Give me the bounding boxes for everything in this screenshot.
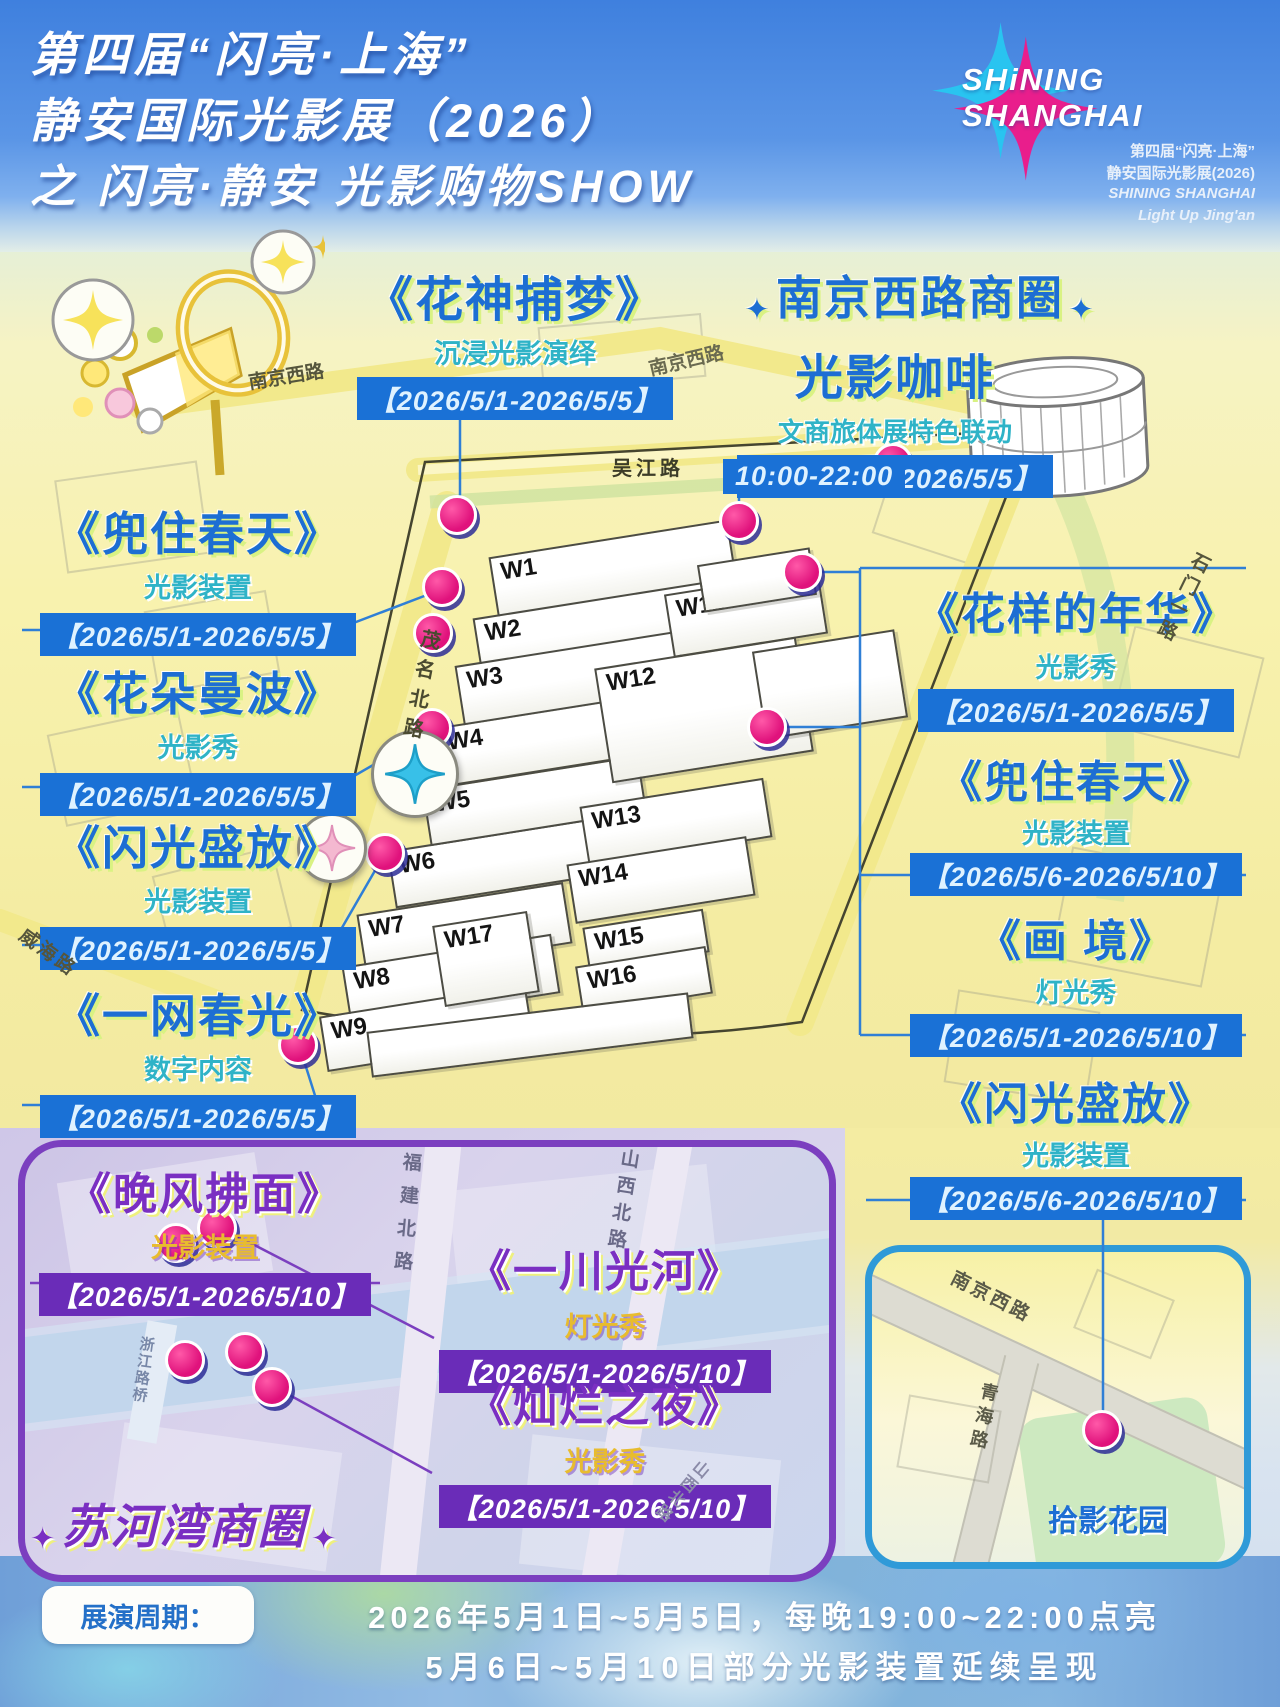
logo-subline1: 第四届“闪亮·上海” [995, 140, 1255, 161]
event-type: 光影装置 [885, 812, 1267, 851]
event-poster: W1 W2 W3 W4 W5 W6 W7 W8 W9 W11 W12 W13 W… [0, 0, 1280, 1707]
event-type: 光影装置 [30, 1226, 380, 1265]
poster-title-line3: 之 闪亮·静安 光影购物SHOW [30, 150, 695, 215]
event-title: 《花样的年华》 [885, 578, 1267, 642]
map-marker [252, 1367, 292, 1407]
event-title: 《晚风拂面》 [30, 1158, 380, 1222]
event-dates-badge: 【2026/5/1-2026/5/5】 [40, 1095, 356, 1138]
map-marker [719, 501, 759, 541]
event-type: 光影秀 [20, 726, 376, 765]
footer-schedule-pill: 展演周期： [42, 1586, 254, 1644]
event-title: 《兜住春天》 [885, 746, 1267, 810]
road-label-wujiang: 吴江路 [612, 452, 684, 481]
event-huaduo-manbo: 《花朵曼波》 光影秀 【2026/5/1-2026/5/5】 [20, 658, 376, 816]
event-dates-badge: 【2026/5/6-2026/5/10】 [910, 1177, 1242, 1220]
megaphone-flowers-illustration [25, 225, 325, 485]
district-title: 南京西路商圈 [776, 272, 1064, 324]
poster-title-line2: 静安国际光影展（2026） [30, 82, 623, 151]
event-canlan-zhiye: 《灿烂之夜》 光影秀 【2026/5/1-2026/5/10】 [420, 1370, 790, 1528]
event-dates-badge: 【2026/5/1-2026/5/5】 [40, 613, 356, 656]
coffee-time-badge: 10:00-22:00 [723, 459, 905, 494]
event-huashen-bumeng: 《花神捕梦》 沉浸光影演绎 【2026/5/1-2026/5/5】 [330, 260, 700, 420]
map-marker [225, 1332, 265, 1372]
logo-subline2: 静安国际光影展(2026) [995, 162, 1255, 183]
sparkle-icon: ✦ [311, 1522, 338, 1555]
event-douzhu-chuntian-right: 《兜住春天》 光影装置 【2026/5/6-2026/5/10】 [885, 746, 1267, 896]
sparkle-icon: ✦ [744, 293, 771, 326]
logo-name-line1: SHiNING [962, 62, 1105, 98]
suhewan-district-title: ✦ 苏河湾商圈 ✦ [30, 1488, 338, 1557]
event-wanfeng-fumian: 《晚风拂面》 光影装置 【2026/5/1-2026/5/10】 [30, 1158, 380, 1316]
event-shanguang-shengfang-left: 《闪光盛放》 光影装置 【2026/5/1-2026/5/5】 [20, 812, 376, 970]
event-huayang-nianhua: 《花样的年华》 光影秀 【2026/5/1-2026/5/5】 [885, 578, 1267, 732]
nanjing-west-district-title: ✦ 南京西路商圈 ✦ [660, 262, 1180, 328]
logo-subline4: Light Up Jing'an [995, 207, 1255, 224]
event-title: 《画 境》 [885, 905, 1267, 969]
event-huajing: 《画 境》 灯光秀 【2026/5/1-2026/5/10】 [885, 905, 1267, 1057]
event-type: 数字内容 [20, 1048, 376, 1087]
map-marker [422, 567, 462, 607]
event-title: 《花神捕梦》 [330, 260, 700, 330]
event-title: 《闪光盛放》 [20, 812, 376, 878]
logo-subline3: SHINING SHANGHAI [995, 185, 1255, 202]
event-dates-badge: 【2026/5/1-2026/5/5】 [357, 377, 673, 420]
event-dates-badge: 【2026/5/1-2026/5/10】 [439, 1485, 771, 1528]
event-type: 沉浸光影演绎 [330, 332, 700, 371]
event-title: 《灿烂之夜》 [420, 1370, 790, 1434]
event-yiwang-chunguang: 《一网春光》 数字内容 【2026/5/1-2026/5/5】 [20, 980, 376, 1138]
sparkle-icon: ✦ [1068, 293, 1095, 326]
logo-name-line2: SHANGHAI [962, 98, 1143, 134]
event-douzhu-chuntian-left: 《兜住春天》 光影装置 【2026/5/1-2026/5/5】 [20, 498, 376, 656]
event-title: 《兜住春天》 [20, 498, 376, 564]
event-dates-badge: 【2026/5/1-2026/5/5】 [918, 689, 1234, 732]
footer-line2: 5月6日~5月10日部分光影装置延续呈现 [262, 1642, 1267, 1687]
event-dates-badge: 【2026/5/1-2026/5/10】 [39, 1273, 371, 1316]
event-type: 灯光秀 [885, 971, 1267, 1010]
event-title: 《一网春光》 [20, 980, 376, 1046]
event-type: 文商旅体展特色联动 [700, 412, 1090, 449]
event-type: 光影秀 [885, 646, 1267, 685]
map-marker [1082, 1410, 1122, 1450]
sparkle-icon [384, 743, 446, 805]
event-title: 《闪光盛放》 [885, 1068, 1267, 1132]
map-marker [165, 1340, 205, 1380]
garden-label: 拾影花园 [1048, 1496, 1168, 1540]
event-dates-badge: 【2026/5/1-2026/5/5】 [40, 773, 356, 816]
event-type: 灯光秀 [420, 1305, 790, 1344]
event-type: 光影装置 [20, 880, 376, 919]
sparkle-icon: ✦ [30, 1522, 57, 1555]
event-title: 光影咖啡 [700, 338, 1090, 408]
map-marker [782, 552, 822, 592]
event-type: 光影秀 [420, 1440, 790, 1479]
event-dates-badge: 【2026/5/1-2026/5/10】 [910, 1014, 1242, 1057]
event-type: 光影装置 [885, 1134, 1267, 1173]
poster-title-line1: 第四届“闪亮·上海” [30, 16, 472, 85]
event-title: 《花朵曼波》 [20, 658, 376, 724]
district-title: 苏河湾商圈 [62, 1500, 307, 1553]
footer-schedule-label: 展演周期： [81, 1596, 216, 1635]
map-marker [747, 707, 787, 747]
event-dates-badge: 【2026/5/6-2026/5/10】 [910, 853, 1242, 896]
map-marker [437, 495, 477, 535]
event-shanguang-shengfang-right: 《闪光盛放》 光影装置 【2026/5/6-2026/5/10】 [885, 1068, 1267, 1220]
event-type: 光影装置 [20, 566, 376, 605]
event-dates-badge: 【2026/5/1-2026/5/5】 [40, 927, 356, 970]
footer-line1: 2026年5月1日~5月5日，每晚19:00~22:00点亮 [262, 1592, 1267, 1637]
